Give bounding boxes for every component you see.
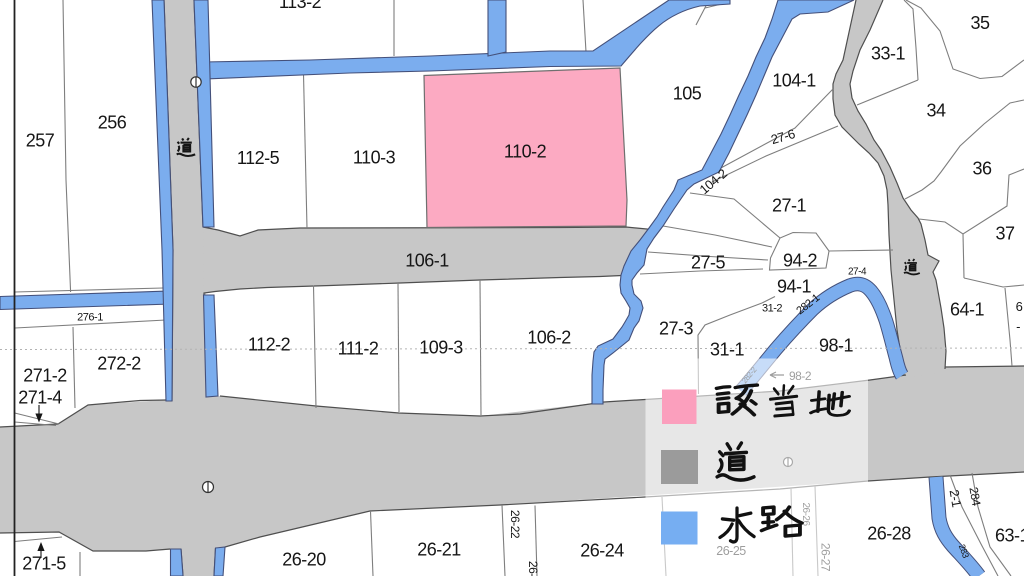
svg-text:94-2: 94-2 — [783, 251, 818, 271]
svg-text:106-2: 106-2 — [527, 328, 571, 348]
svg-text:2-1: 2-1 — [947, 488, 965, 508]
svg-text:271-4: 271-4 — [18, 388, 62, 408]
svg-text:36: 36 — [972, 159, 992, 179]
svg-text:34: 34 — [926, 101, 946, 121]
svg-text:26-23: 26-23 — [526, 561, 540, 576]
svg-text:113-2: 113-2 — [279, 0, 322, 12]
svg-text:111-2: 111-2 — [338, 339, 379, 359]
svg-text:33-1: 33-1 — [871, 44, 906, 64]
svg-text:98-1: 98-1 — [819, 336, 854, 356]
svg-text:105: 105 — [673, 84, 702, 104]
svg-text:26-20: 26-20 — [282, 550, 326, 570]
svg-text:271-2: 271-2 — [23, 366, 67, 386]
svg-text:35: 35 — [970, 13, 990, 33]
svg-text:26-28: 26-28 — [867, 524, 911, 544]
svg-text:63-1: 63-1 — [995, 526, 1024, 546]
svg-text:110-3: 110-3 — [353, 148, 396, 168]
svg-text:27-4: 27-4 — [848, 267, 867, 278]
svg-text:112-2: 112-2 — [248, 335, 291, 355]
svg-text:64-1: 64-1 — [950, 300, 985, 320]
svg-text:27-5: 27-5 — [691, 253, 726, 273]
svg-text:31-2: 31-2 — [762, 303, 782, 315]
svg-text:271-5: 271-5 — [22, 554, 66, 574]
svg-text:110-2: 110-2 — [504, 142, 547, 162]
svg-text:106-1: 106-1 — [405, 251, 449, 271]
svg-text:26-24: 26-24 — [580, 541, 624, 561]
svg-text:26-21: 26-21 — [417, 540, 461, 560]
svg-text:26-22: 26-22 — [508, 510, 522, 539]
svg-text:6: 6 — [1016, 299, 1023, 314]
svg-text:27-1: 27-1 — [772, 196, 807, 216]
svg-text:37: 37 — [995, 224, 1015, 244]
svg-text:31-1: 31-1 — [710, 340, 745, 360]
svg-text:104-1: 104-1 — [772, 71, 816, 91]
svg-text:27-3: 27-3 — [659, 319, 694, 339]
svg-text:257: 257 — [26, 131, 55, 151]
svg-text:112-5: 112-5 — [237, 148, 280, 168]
svg-text:94-1: 94-1 — [777, 277, 812, 297]
svg-text:276-1: 276-1 — [77, 312, 103, 324]
svg-text:109-3: 109-3 — [419, 338, 463, 358]
svg-text:272-2: 272-2 — [97, 354, 141, 374]
svg-text:256: 256 — [98, 113, 127, 133]
svg-text:-: - — [1016, 319, 1020, 334]
